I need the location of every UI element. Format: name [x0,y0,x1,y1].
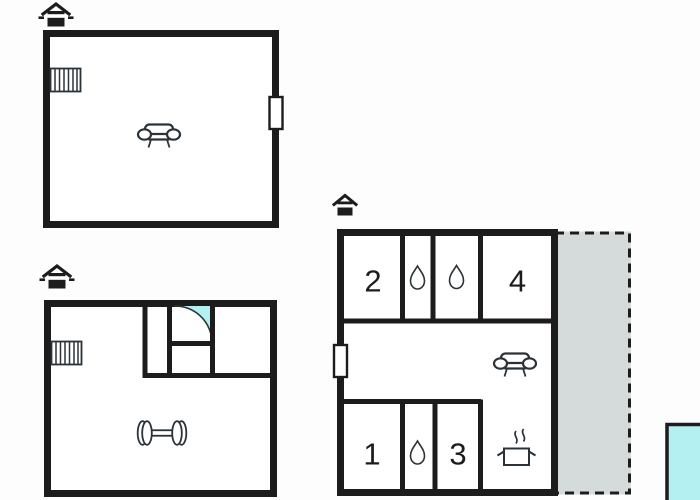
door-marker [334,345,347,377]
house-dash-left [39,16,45,19]
pool-area [667,425,700,500]
sofa-arm-right [167,129,180,139]
floorplan-canvas: 2 4 1 3 [0,0,700,500]
terrace-fill [556,232,631,495]
pot-body [504,449,529,466]
ground-floor-plan: 2 4 1 3 [334,196,631,495]
room-label-4: 4 [509,264,526,299]
dumbbell-disc-right-inner [172,421,182,445]
sofa-arm-right [523,358,536,368]
house-icon [40,266,75,289]
room-label-1: 1 [363,437,380,472]
basement-plan [40,266,275,494]
house-icon [39,4,74,27]
house-body [48,11,65,27]
sofa-arm-left [138,129,151,139]
basement-outer-walls [48,304,274,494]
dumbbell-disc-left-inner [142,421,152,445]
stairs-icon [52,342,82,365]
terrace-area [555,232,631,495]
upper-floor-plan [39,4,283,225]
house-dash-right [69,278,75,281]
floorplan-drawing: 2 4 1 3 [0,0,700,500]
stairs-icon [51,69,81,92]
house-dash-left [40,278,46,281]
house-body [338,202,353,216]
house-icon [334,196,356,216]
sofa-arm-left [494,358,507,368]
house-band [49,276,66,280]
house-band [48,14,65,18]
house-body [49,273,66,289]
dumbbell-bar [149,430,175,436]
room-label-2: 2 [364,264,381,299]
door-marker [270,97,283,129]
house-dash-right [68,16,74,19]
house-band [338,204,353,207]
room-label-3: 3 [449,437,466,472]
